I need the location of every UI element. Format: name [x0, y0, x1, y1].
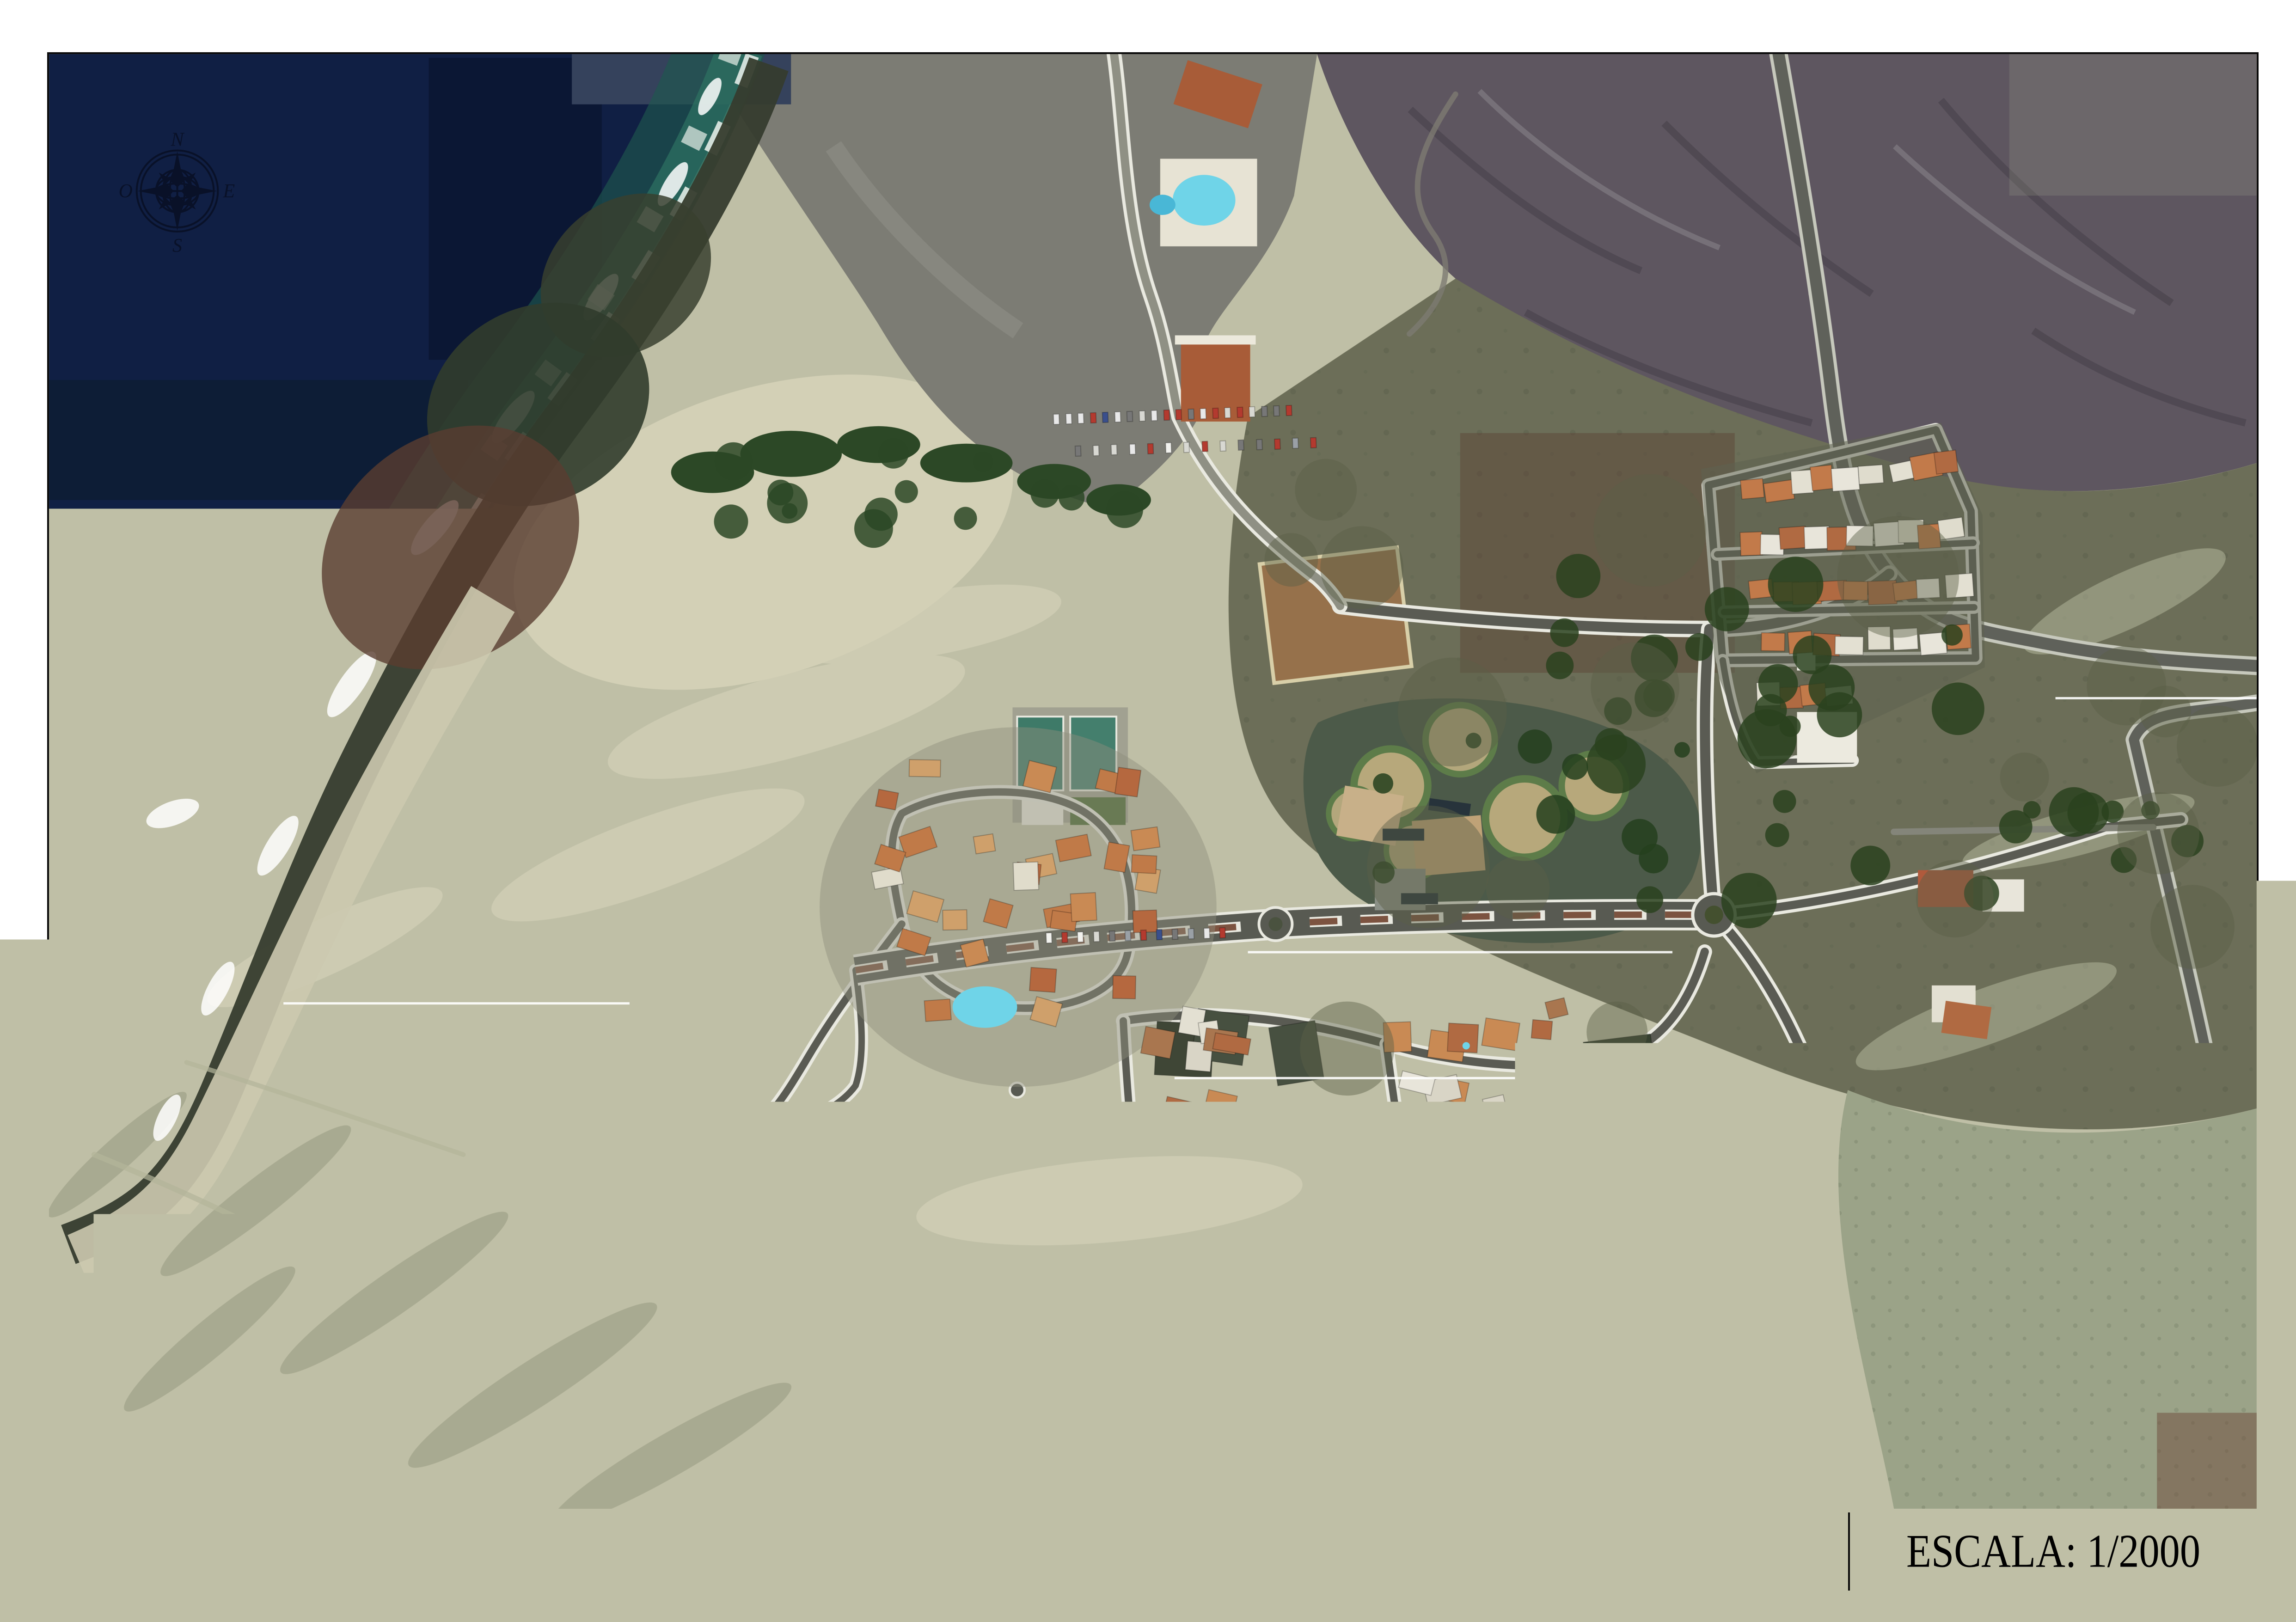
sheet-title: URBANIZACIÓN LA PARED - PÁJARA - FUERTEV… — [146, 1518, 1505, 1584]
resort-pool — [953, 986, 1017, 1028]
compass-south-label: S — [172, 235, 182, 257]
facility-pool — [1173, 175, 1236, 226]
satellite-map: N E S O — [47, 52, 2259, 1511]
compass-west-label: O — [119, 181, 133, 202]
plan-sheet: N E S O URBANIZACIÓN LA PARED - PÁJARA -… — [0, 0, 2296, 1622]
satellite-map-image: N E S O — [49, 54, 2257, 1509]
scale-cell: ESCALA: 1/2000 — [1848, 1512, 2257, 1591]
title-block: URBANIZACIÓN LA PARED - PÁJARA - FUERTEV… — [47, 1511, 2259, 1592]
compass-north-label: N — [171, 129, 185, 151]
paper-format-value: ISO A-1 — [1657, 1524, 1794, 1579]
compass-east-label: E — [223, 181, 235, 202]
scale-value: ESCALA: 1/2000 — [1906, 1524, 2200, 1579]
paper-format-cell: FORMATO PAPEL: ISO A-1 — [1601, 1512, 1848, 1591]
title-cell: URBANIZACIÓN LA PARED - PÁJARA - FUERTEV… — [49, 1512, 1601, 1591]
